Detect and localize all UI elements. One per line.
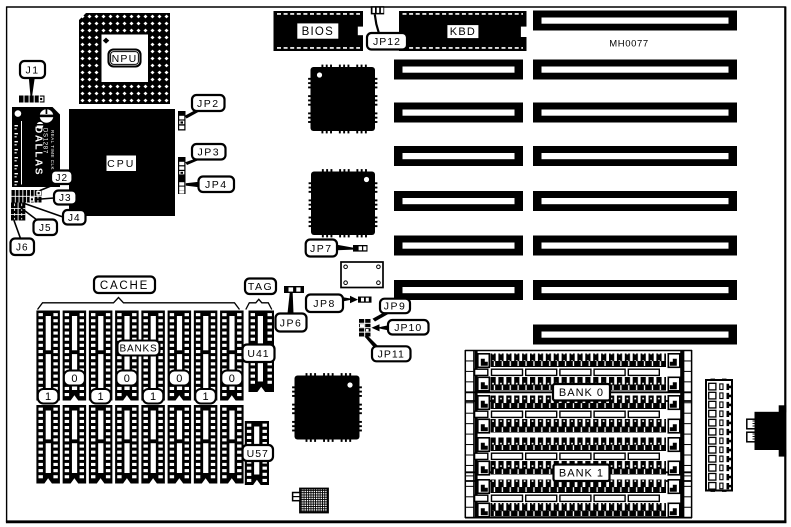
svg-text:BIOS: BIOS — [302, 26, 334, 38]
svg-text:JP12: JP12 — [373, 36, 401, 48]
svg-text:JP9: JP9 — [384, 301, 407, 313]
svg-text:JP8: JP8 — [313, 298, 336, 310]
svg-text:U41: U41 — [247, 348, 269, 360]
svg-text:JP10: JP10 — [394, 322, 422, 334]
svg-text:0: 0 — [229, 373, 235, 385]
svg-text:MH0077: MH0077 — [609, 39, 649, 50]
svg-text:1: 1 — [202, 391, 208, 403]
svg-text:1: 1 — [150, 391, 156, 403]
svg-text:JP2: JP2 — [197, 98, 220, 110]
svg-text:TAG: TAG — [248, 281, 273, 293]
svg-text:J5: J5 — [39, 223, 52, 234]
svg-text:KBD: KBD — [450, 26, 476, 38]
svg-text:J4: J4 — [68, 213, 81, 224]
svg-text:0: 0 — [71, 373, 77, 385]
svg-text:CPU: CPU — [107, 158, 135, 170]
svg-text:JP3: JP3 — [197, 147, 220, 159]
svg-text:JP7: JP7 — [310, 243, 333, 255]
svg-text:DS1287: DS1287 — [42, 128, 48, 154]
svg-text:1: 1 — [98, 391, 104, 403]
svg-text:BANKS: BANKS — [120, 344, 158, 355]
svg-text:1: 1 — [45, 391, 51, 403]
svg-text:JP4: JP4 — [205, 179, 228, 191]
svg-text:REAL TIME CLK: REAL TIME CLK — [50, 130, 55, 170]
svg-text:J3: J3 — [59, 193, 72, 204]
svg-text:JP6: JP6 — [280, 317, 303, 329]
svg-text:J2: J2 — [55, 173, 68, 184]
svg-text:0: 0 — [124, 373, 130, 385]
svg-text:0: 0 — [176, 373, 182, 385]
svg-text:U57: U57 — [247, 448, 269, 460]
svg-text:J6: J6 — [16, 242, 29, 253]
svg-text:BANK 0: BANK 0 — [559, 387, 604, 399]
svg-text:JP11: JP11 — [378, 349, 405, 361]
svg-text:CACHE: CACHE — [100, 280, 149, 292]
svg-text:J1: J1 — [25, 64, 39, 76]
svg-text:NPU: NPU — [112, 53, 138, 65]
svg-text:BANK 1: BANK 1 — [559, 468, 604, 480]
